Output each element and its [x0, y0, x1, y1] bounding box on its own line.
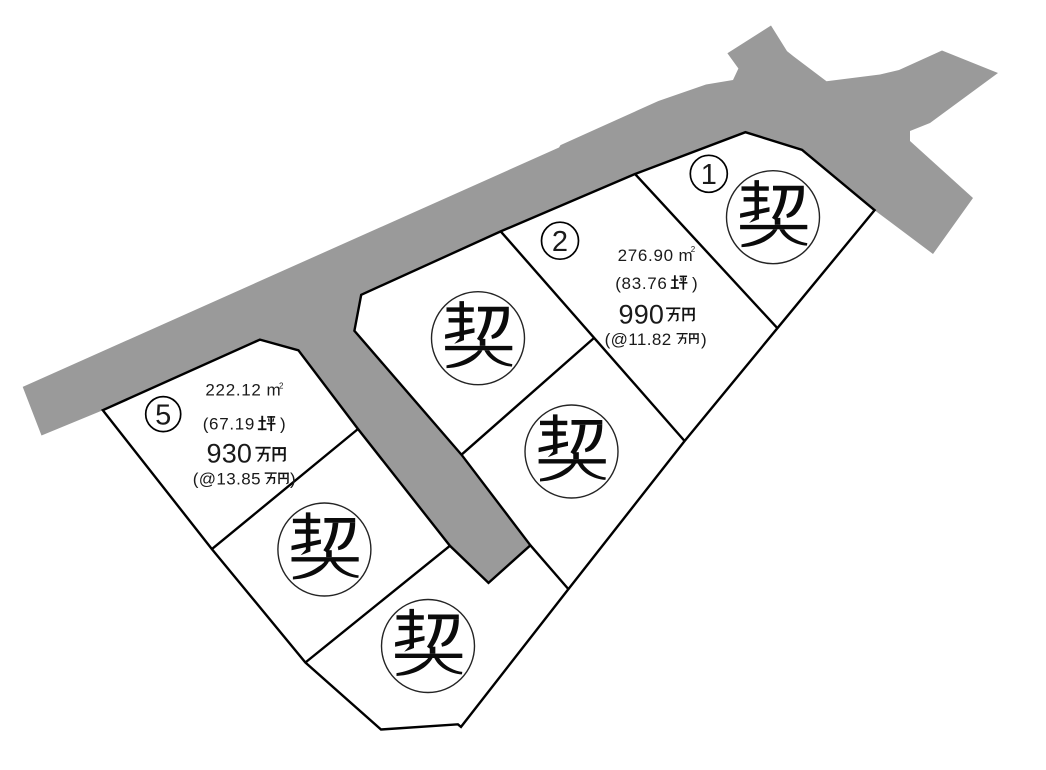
svg-text:930: 930	[207, 439, 253, 469]
svg-text:1: 1	[701, 159, 717, 191]
svg-text:2: 2	[691, 245, 696, 254]
svg-text:990: 990	[619, 300, 665, 330]
svg-text:(@13.85: (@13.85	[193, 469, 261, 488]
svg-text:): )	[290, 469, 296, 488]
svg-text:2: 2	[552, 226, 568, 258]
svg-text:(@11.82: (@11.82	[605, 330, 672, 349]
svg-text:): )	[692, 274, 698, 293]
svg-text:5: 5	[155, 400, 171, 432]
svg-text:2: 2	[279, 381, 284, 390]
svg-text:222.12: 222.12	[205, 380, 261, 399]
svg-text:(83.76: (83.76	[615, 274, 667, 293]
svg-text:): )	[701, 330, 707, 349]
svg-text:): )	[280, 415, 286, 434]
svg-text:(67.19: (67.19	[203, 415, 255, 434]
svg-text:276.90: 276.90	[618, 246, 674, 265]
